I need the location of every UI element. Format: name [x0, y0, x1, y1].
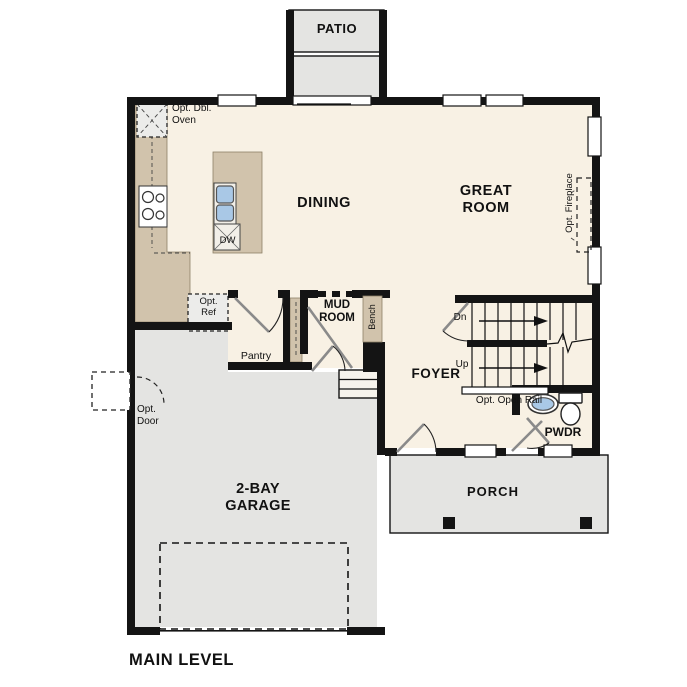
opt-ref-label: Opt. Ref — [191, 297, 226, 319]
window — [486, 95, 523, 106]
garage-door-opening — [160, 630, 347, 632]
patio-label: PATIO — [299, 22, 375, 37]
window — [443, 95, 481, 106]
patio-wall-left — [286, 10, 294, 100]
floor-plan-drawing — [0, 0, 687, 687]
opt-fireplace-label: Opt. Fireplace — [565, 162, 577, 244]
garage-steps — [339, 370, 379, 398]
window — [218, 95, 256, 106]
porch-label: PORCH — [459, 485, 527, 500]
plan-title: MAIN LEVEL — [129, 651, 259, 670]
cooktop — [139, 186, 167, 227]
pwdr-label: PWDR — [538, 426, 588, 440]
mud-room-chase — [363, 342, 385, 372]
dining-label: DINING — [287, 195, 361, 212]
opt-door-label: Opt. Door — [137, 404, 177, 427]
pantry-label: Pantry — [228, 350, 284, 362]
garage-label: 2-BAY GARAGE — [203, 481, 313, 514]
great-room-label: GREAT ROOM — [448, 183, 524, 216]
porch-post — [580, 517, 592, 529]
open-rail — [462, 387, 548, 394]
patio-slider-door — [293, 96, 371, 105]
floor-plan: PATIO Opt. Dbl. Oven DINING GREAT ROOM O… — [0, 0, 687, 687]
porch-post — [443, 517, 455, 529]
opt-double-oven — [137, 104, 167, 137]
mud-room-label: MUD ROOM — [312, 299, 362, 325]
window — [544, 445, 572, 457]
stairs-up-label: Up — [453, 359, 471, 371]
window — [588, 247, 601, 284]
opt-open-rail-label: Opt. Open Rail — [467, 395, 551, 407]
window — [465, 445, 496, 457]
kitchen-sink — [214, 183, 236, 224]
window — [588, 117, 601, 156]
bench-label: Bench — [367, 297, 377, 337]
toilet — [559, 393, 582, 425]
dishwasher-label: DW — [215, 236, 240, 247]
opt-dbl-oven-label: Opt. Dbl. Oven — [172, 103, 212, 126]
stairs-dn-label: Dn — [451, 312, 469, 324]
patio-wall-right — [379, 10, 387, 100]
